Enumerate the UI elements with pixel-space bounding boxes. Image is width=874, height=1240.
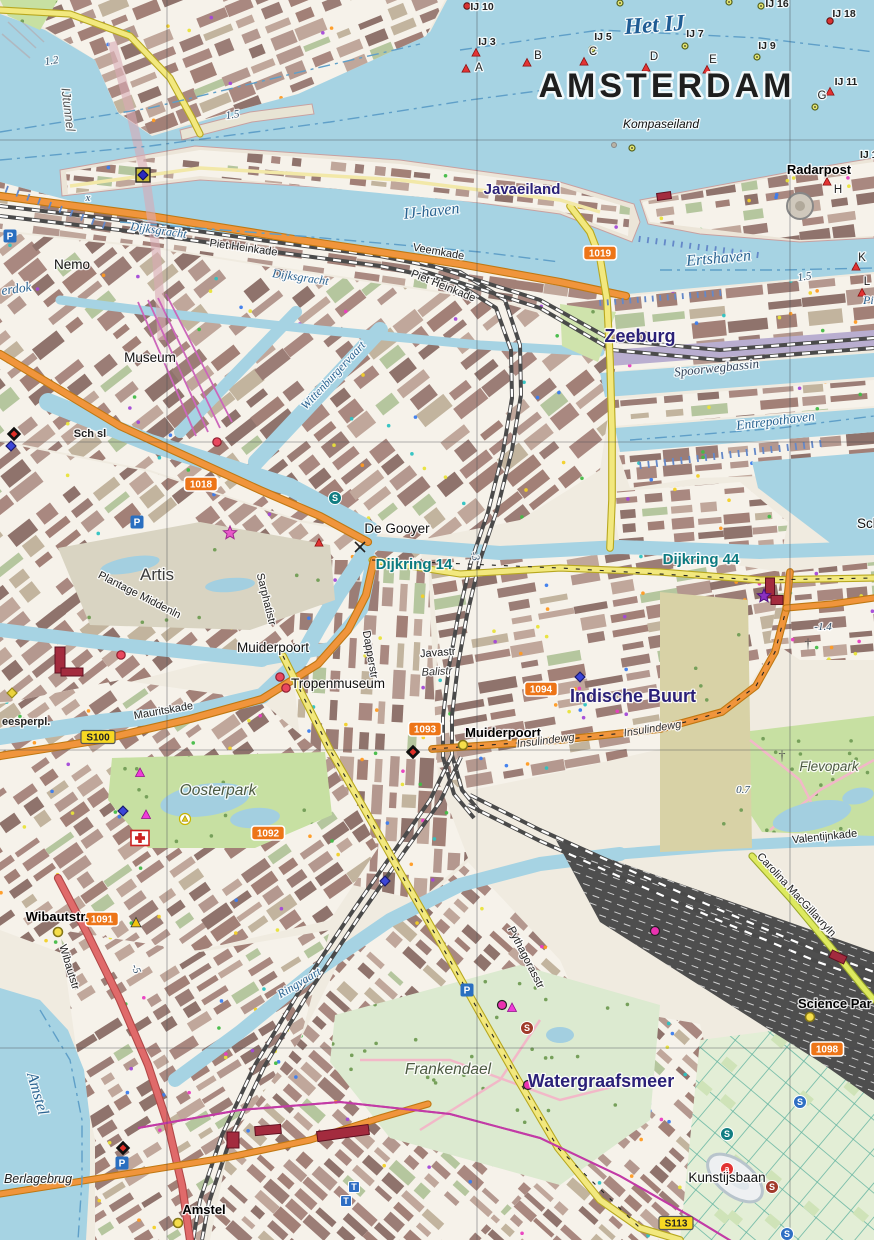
svg-text:P: P [119, 1159, 126, 1170]
landmark-building [657, 192, 672, 201]
landmark-building [61, 668, 83, 676]
parking-icon: P [461, 984, 474, 997]
label-de-gooyer: De Gooyer [364, 521, 430, 536]
label-oosterpark: Oosterpark [180, 782, 258, 799]
s-circle-icon: S [721, 1128, 734, 1141]
svg-text:T: T [343, 1196, 349, 1206]
svg-text:S: S [797, 1097, 803, 1107]
metro-icon: T [349, 1182, 360, 1193]
route-badge-1019: 1019 [584, 246, 617, 260]
route-badge-1091: 1091 [86, 912, 119, 926]
svg-text:S: S [724, 1129, 730, 1139]
label-ij-1: IJ 1 [860, 149, 874, 161]
svg-text:T: T [351, 1182, 357, 1192]
diamond-boxed-icon [136, 168, 150, 182]
s-circle-icon: S [766, 1181, 779, 1194]
landmark-building [771, 596, 783, 605]
buoy-ring-icon [754, 54, 760, 60]
hospital-icon [131, 831, 149, 846]
buoy-ring-icon [812, 104, 818, 110]
cross-icon: † [779, 749, 786, 764]
station-icon [54, 928, 63, 937]
buoy-ring-icon [726, 0, 732, 5]
svg-text:†: † [805, 637, 812, 652]
route-badge-1092: 1092 [252, 826, 285, 840]
s-circle-icon: S [521, 1022, 534, 1035]
label-amsterdam: AMSTERDAM [539, 67, 796, 105]
label-c: C [589, 46, 597, 58]
svg-text:1018: 1018 [190, 480, 213, 491]
svg-text:P: P [7, 232, 14, 243]
label-frankendael: Frankendael [405, 1061, 492, 1078]
parking-icon: P [131, 516, 144, 529]
label-museum: Museum [124, 350, 176, 365]
svg-text:S100: S100 [86, 733, 110, 744]
label-sch: Sch [857, 516, 874, 531]
label-x: x [85, 192, 91, 204]
svg-text:1019: 1019 [589, 249, 612, 260]
label-ij-10: IJ 10 [470, 1, 494, 13]
buoy-ring-icon [682, 43, 688, 49]
label-watergraafsmeer: Watergraafsmeer [528, 1071, 674, 1091]
label-javastr: Javastr [420, 646, 457, 660]
label-science-par: Science Par [798, 996, 872, 1011]
label-e: E [709, 54, 717, 66]
label-ij-18: IJ 18 [832, 8, 856, 20]
station-icon [806, 1013, 815, 1022]
s-circle-icon: S [329, 492, 342, 505]
label-ij-16: IJ 16 [765, 0, 789, 10]
label-eesperpl: eesperpl. [2, 716, 50, 728]
svg-text:S113: S113 [665, 1219, 688, 1230]
svg-text:1092: 1092 [257, 829, 280, 840]
route-badge-1094: 1094 [525, 682, 558, 696]
s-circle-icon: S [794, 1096, 807, 1109]
label-sch-sl: Sch sl [74, 428, 106, 440]
label-g: G [818, 90, 827, 102]
label-b: B [534, 50, 542, 62]
label-berlagebrug: Berlagebrug [4, 1172, 72, 1186]
label-het-ij: Het IJ [622, 10, 687, 39]
buoy-ring-icon [629, 145, 635, 151]
label-1-2: 1.2 [44, 54, 60, 68]
svg-text:P: P [134, 518, 141, 529]
topographic-map-amsterdam: PPPPSSSSSSaTT††1019101810941093109210911… [0, 0, 874, 1240]
magenta-dot-icon [651, 927, 660, 936]
label-kunstijsbaan: Kunstijsbaan [688, 1170, 765, 1185]
label-balistr: Balistr [421, 665, 453, 679]
label-dijkring-44: Dijkring 44 [663, 551, 740, 568]
route-badge-1093: 1093 [409, 722, 442, 736]
svg-text:1098: 1098 [816, 1045, 839, 1056]
label-muiderpoort: Muiderpoort [237, 640, 309, 655]
red-buoy-icon [464, 3, 470, 9]
landmark-building [227, 1132, 239, 1148]
label-0-7: 0.7 [736, 784, 750, 796]
label-ij-3: IJ 3 [478, 36, 496, 48]
svg-text:S: S [524, 1023, 530, 1033]
circ-tri-icon [180, 814, 191, 825]
label-pie: Pie [862, 293, 874, 307]
label-kompaseiland: Kompaseiland [623, 117, 699, 131]
label-amstel: Amstel [182, 1202, 225, 1217]
label-l: L [864, 276, 871, 288]
label-javaeiland: Javaeiland [484, 181, 561, 198]
svg-text:S: S [769, 1182, 775, 1192]
s-circle-icon: S [781, 1228, 794, 1240]
label-radarpost: Radarpost [787, 162, 852, 177]
red-dot-icon [282, 684, 290, 692]
buoy-ring-icon [758, 3, 764, 9]
magenta-dot-icon [498, 1001, 507, 1010]
label-h: H [834, 184, 842, 196]
svg-text:†: † [779, 749, 786, 764]
label-wibautstr: Wibautstr. [26, 909, 89, 924]
svg-text:1093: 1093 [414, 725, 437, 736]
red-dot-icon [276, 673, 284, 681]
red-dot-icon [213, 438, 221, 446]
parking-icon: P [4, 230, 17, 243]
map-canvas: PPPPSSSSSSaTT††1019101810941093109210911… [0, 0, 874, 1240]
label-a: A [475, 62, 483, 74]
s-road-badge-S113: S113 [659, 1217, 693, 1230]
label-indische-buurt: Indische Buurt [570, 686, 696, 706]
red-dot-icon [117, 651, 125, 659]
label-zeeburg: Zeeburg [604, 326, 675, 346]
label-ij-5: IJ 5 [594, 31, 612, 43]
label-flevopark: Flevopark [799, 759, 860, 774]
svg-text:S: S [784, 1229, 790, 1239]
label-nemo: Nemo [54, 257, 90, 272]
svg-text:1094: 1094 [530, 685, 553, 696]
s-road-badge-S100: S100 [81, 731, 115, 744]
station-icon [174, 1219, 183, 1228]
station-icon [459, 741, 468, 750]
label-1-5: 1.5 [797, 270, 813, 284]
label-artis: Artis [140, 565, 174, 584]
label-ij-11: IJ 11 [835, 76, 858, 88]
label-dijkring-14: Dijkring 14 [376, 556, 453, 573]
svg-text:1091: 1091 [91, 915, 114, 926]
label-1-4: -1.4 [814, 621, 832, 633]
label-1-5: 1.5 [225, 108, 241, 122]
label-d: D [650, 51, 658, 63]
svg-text:S: S [332, 493, 338, 503]
parking-icon: P [116, 1157, 129, 1170]
route-badge-1098: 1098 [811, 1042, 844, 1056]
buoy-ring-icon [617, 0, 623, 6]
label-k: K [858, 252, 866, 264]
svg-text:P: P [464, 986, 471, 997]
cross-icon: † [805, 637, 812, 652]
landmark-building [255, 1124, 282, 1135]
label-ij-7: IJ 7 [686, 28, 704, 40]
route-badge-1018: 1018 [185, 477, 218, 491]
metro-icon: T [341, 1196, 352, 1207]
label-ij-9: IJ 9 [758, 40, 776, 52]
